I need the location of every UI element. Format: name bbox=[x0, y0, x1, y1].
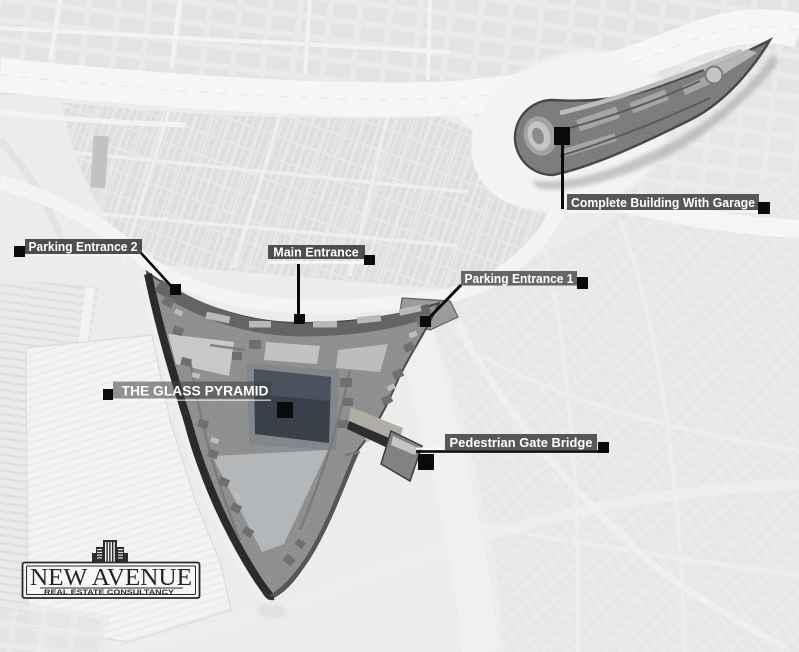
svg-text:Main Entrance: Main Entrance bbox=[273, 246, 358, 260]
svg-text:REAL ESTATE CONSULTANCY: REAL ESTATE CONSULTANCY bbox=[44, 587, 174, 596]
svg-text:Complete Building With Garage: Complete Building With Garage bbox=[571, 196, 755, 210]
svg-text:THE GLASS PYRAMID: THE GLASS PYRAMID bbox=[122, 384, 269, 399]
svg-text:Pedestrian Gate Bridge: Pedestrian Gate Bridge bbox=[450, 436, 593, 450]
svg-text:Parking Entrance 2: Parking Entrance 2 bbox=[29, 240, 138, 254]
svg-text:Parking Entrance 1: Parking Entrance 1 bbox=[465, 272, 574, 286]
